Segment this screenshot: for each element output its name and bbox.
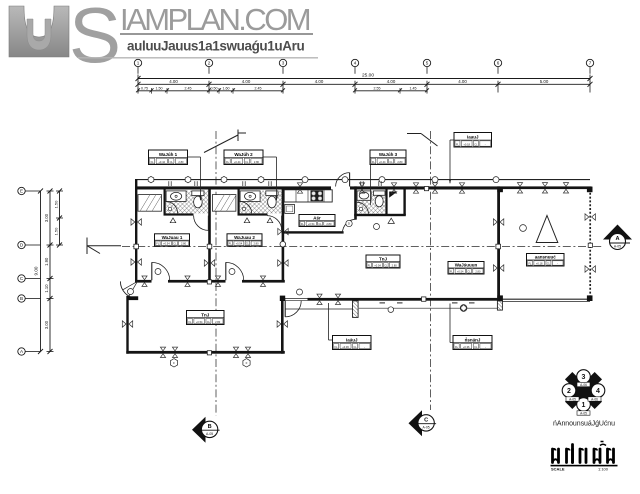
svg-text:2.80: 2.80 — [254, 242, 260, 246]
svg-text:1: 1 — [582, 402, 586, 409]
svg-text:CL: CL — [474, 345, 478, 349]
svg-text:F: F — [246, 361, 248, 365]
svg-text:1.90: 1.90 — [44, 257, 49, 266]
svg-text:IAMPLAN.COM: IAMPLAN.COM — [120, 2, 312, 37]
svg-text:WaJúh 2: WaJúh 2 — [234, 152, 253, 157]
svg-text:2.80: 2.80 — [178, 160, 184, 164]
svg-text:+0.54: +0.54 — [163, 242, 170, 246]
svg-text:SCALE: SCALE — [551, 467, 565, 472]
svg-text:2.80: 2.80 — [215, 320, 221, 324]
svg-text:CL: CL — [173, 242, 177, 246]
svg-text:WaJuau 2: WaJuau 2 — [234, 235, 255, 240]
svg-text:A-05: A-05 — [423, 426, 430, 430]
svg-text:CL: CL — [384, 263, 388, 267]
svg-text:0.75: 0.75 — [141, 87, 148, 91]
svg-text:4: 4 — [596, 388, 600, 395]
svg-text:CL: CL — [170, 160, 174, 164]
svg-text:B: B — [20, 296, 23, 301]
svg-text:2.80: 2.80 — [392, 263, 398, 267]
svg-text:A-06: A-06 — [580, 383, 587, 387]
svg-text:1.10: 1.10 — [44, 284, 49, 293]
svg-text:3.00: 3.00 — [44, 320, 49, 329]
svg-text:iaauJ: iaauJ — [467, 135, 479, 140]
svg-text:3.00: 3.00 — [44, 213, 49, 222]
svg-text:2.80: 2.80 — [475, 269, 481, 273]
svg-text:CL: CL — [245, 160, 249, 164]
svg-text:CL: CL — [246, 242, 250, 246]
svg-text:WaJúh 3: WaJúh 3 — [379, 152, 398, 157]
svg-text:-: - — [485, 143, 486, 146]
svg-text:25.00: 25.00 — [362, 72, 374, 78]
svg-text:-: - — [485, 346, 486, 349]
svg-text:iaáuJ: iaáuJ — [346, 337, 358, 342]
svg-text:+0.36: +0.36 — [463, 345, 470, 349]
svg-text:+0.18: +0.18 — [536, 261, 543, 265]
svg-text:C: C — [424, 417, 428, 423]
svg-text:2.55: 2.55 — [374, 87, 381, 91]
svg-text:1.45: 1.45 — [410, 87, 417, 91]
svg-text:CL: CL — [353, 345, 357, 349]
svg-text:2.80: 2.80 — [254, 160, 260, 164]
svg-text:2.45: 2.45 — [255, 87, 262, 91]
svg-text:1.50: 1.50 — [54, 200, 59, 209]
svg-text:+0.44: +0.44 — [234, 160, 241, 164]
svg-text:4.00: 4.00 — [315, 79, 324, 84]
svg-text:+0.54: +0.54 — [196, 320, 203, 324]
svg-text:3: 3 — [282, 61, 285, 66]
svg-text:CL: CL — [474, 142, 478, 146]
svg-text:4.00: 4.00 — [458, 79, 467, 84]
svg-text:-: - — [364, 346, 365, 349]
svg-text:E: E — [20, 189, 23, 194]
svg-text:+0.44: +0.44 — [379, 160, 386, 164]
svg-text:A-05: A-05 — [569, 398, 576, 402]
svg-text:0.50: 0.50 — [211, 87, 218, 91]
svg-text:4.00: 4.00 — [242, 79, 251, 84]
svg-text:CL: CL — [467, 269, 471, 273]
svg-text:4.00: 4.00 — [169, 79, 178, 84]
svg-text:F: F — [173, 361, 175, 365]
svg-text:9.00: 9.00 — [34, 266, 39, 275]
svg-text:CL: CL — [389, 160, 393, 164]
svg-text:7: 7 — [589, 61, 592, 66]
svg-text:5: 5 — [426, 61, 429, 66]
svg-text:ńAnnounsuáJǵUćnu: ńAnnounsuáJǵUćnu — [553, 421, 615, 428]
svg-text:5.00: 5.00 — [540, 79, 549, 84]
svg-text:+0.54: +0.54 — [457, 269, 464, 273]
svg-text:4.00: 4.00 — [387, 79, 396, 84]
svg-text:2.80: 2.80 — [326, 222, 332, 226]
svg-text:+0.54: +0.54 — [374, 263, 381, 267]
svg-text:1.60: 1.60 — [223, 87, 230, 91]
svg-text:2: 2 — [567, 388, 571, 395]
svg-text:4: 4 — [354, 61, 357, 66]
svg-text:WaJúh 1: WaJúh 1 — [159, 152, 178, 157]
svg-text:aansnuuć: aansnuuć — [535, 255, 557, 260]
svg-text:CL: CL — [318, 222, 322, 226]
svg-text:B: B — [208, 424, 212, 430]
svg-text:auluuJauus1a1swuaǵu1uAru: auluuJauus1a1swuaǵu1uAru — [127, 39, 305, 54]
svg-text:WaJuau 1: WaJuau 1 — [162, 235, 183, 240]
svg-text:6: 6 — [497, 61, 500, 66]
svg-text:A-05: A-05 — [206, 432, 213, 436]
svg-text:A-05: A-05 — [614, 244, 621, 248]
svg-text:1: 1 — [137, 61, 140, 66]
svg-text:CL: CL — [207, 320, 211, 324]
svg-text:-: - — [557, 262, 558, 265]
svg-text:A-06: A-06 — [591, 398, 598, 402]
svg-text:WaJśuuun: WaJśuuun — [455, 263, 478, 268]
svg-text:3: 3 — [582, 374, 586, 381]
svg-text:2: 2 — [208, 61, 211, 66]
svg-text:TnJ: TnJ — [201, 312, 209, 317]
svg-text:S: S — [69, 0, 121, 79]
svg-text:1.50: 1.50 — [156, 87, 163, 91]
svg-text:TnJ: TnJ — [379, 256, 387, 261]
svg-text:ń́snánJ: ń́snánJ — [465, 336, 481, 342]
svg-text:Aśr: Aśr — [313, 215, 321, 220]
svg-text:2.80: 2.80 — [181, 242, 187, 246]
svg-text:+0.54: +0.54 — [236, 242, 243, 246]
svg-text:2.45: 2.45 — [185, 87, 192, 91]
svg-text:CL: CL — [547, 261, 551, 265]
svg-text:+0.54: +0.54 — [308, 222, 315, 226]
svg-text:1:100: 1:100 — [598, 467, 609, 472]
svg-text:+0.18: +0.18 — [463, 142, 470, 146]
svg-text:+0.44: +0.44 — [158, 160, 165, 164]
svg-text:+0.36: +0.36 — [342, 345, 349, 349]
svg-text:2.80: 2.80 — [397, 160, 403, 164]
svg-text:A-05: A-05 — [580, 412, 587, 416]
svg-text:A: A — [615, 236, 619, 242]
svg-text:1.50: 1.50 — [54, 227, 59, 236]
